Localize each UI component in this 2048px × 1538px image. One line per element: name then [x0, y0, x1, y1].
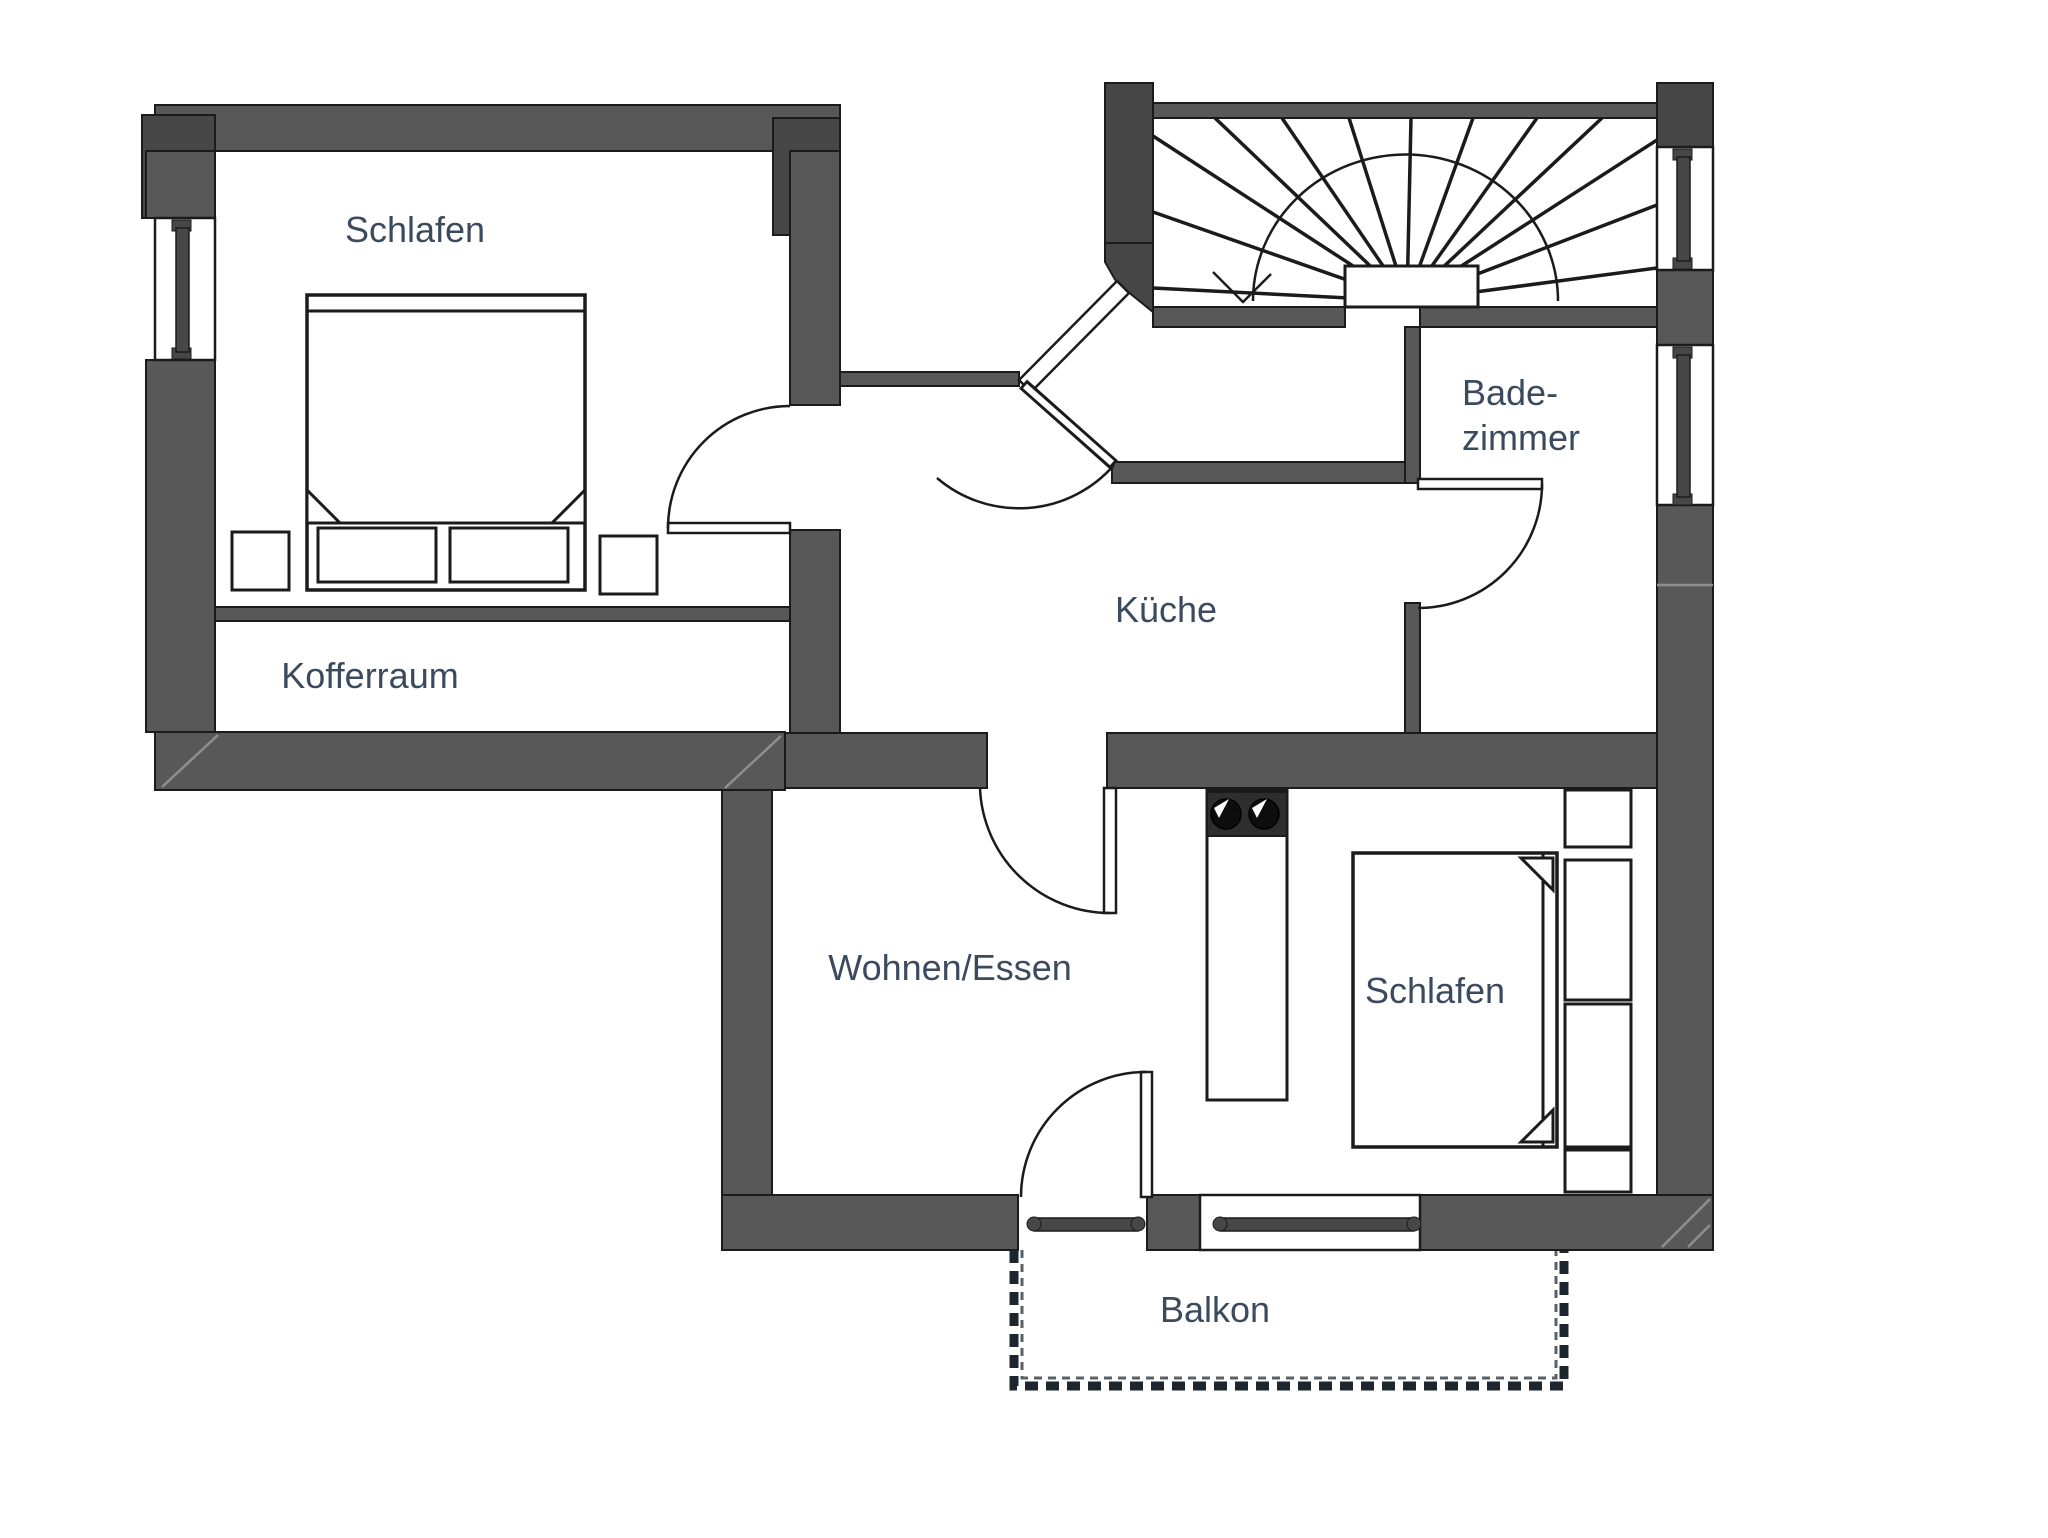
wall-south-pier [1147, 1195, 1200, 1250]
wall-stairs-top [1153, 103, 1657, 118]
pillar-top-right-corner [1657, 83, 1713, 147]
wall-stairs-bottom-left [1153, 307, 1345, 327]
wall-top-left-block [155, 105, 840, 151]
door-badezimmer [1418, 479, 1542, 608]
staircase [1153, 118, 1657, 307]
door-arc [937, 465, 1114, 508]
wall-west-lower-block [722, 790, 772, 1195]
door-leaf [1141, 1072, 1152, 1197]
door-leaf [1418, 479, 1542, 489]
wall-left-lower [146, 360, 215, 732]
door-leaf [1104, 788, 1116, 913]
room-label-badezimmer-line2: zimmer [1462, 417, 1580, 458]
room-label-kueche: Küche [1115, 589, 1217, 630]
kitchen-counter-icon [1207, 790, 1287, 1100]
bed-icon-schlafen1 [307, 295, 585, 590]
wall-east-lower [1657, 505, 1713, 1195]
wall-notch-thin [840, 372, 1019, 386]
stair-landing [1345, 266, 1478, 307]
wall-bath-west-upper [1405, 327, 1420, 483]
wall-diagonal [1019, 281, 1129, 392]
wall-east-between-windows [1657, 270, 1713, 345]
room-label-balkon: Balkon [1160, 1289, 1270, 1330]
wall-stairs-bottom-right [1420, 307, 1657, 327]
room-label-schlafen2: Schlafen [1365, 970, 1505, 1011]
balcony-railing [1014, 1250, 1564, 1386]
wall-schlafen1-right-upper [790, 151, 840, 405]
room-label-schlafen1: Schlafen [345, 209, 485, 250]
door-arc [980, 788, 1110, 913]
wall-south-seg1 [722, 1195, 1018, 1250]
room-label-wohnen-essen: Wohnen/Essen [828, 947, 1072, 988]
window-stairs-east [1657, 147, 1713, 270]
wall-entry-south [1112, 462, 1417, 483]
floorplan-svg: Schlafen Kofferraum Küche Bade- zimmer W… [0, 0, 2048, 1538]
nightstand-icon-left [232, 532, 289, 590]
door-arc [668, 406, 790, 528]
wardrobe-icon-schlafen2 [1565, 790, 1631, 1192]
door-wohnen-essen [980, 788, 1116, 913]
wall-kueche-south-seg2 [1107, 733, 1657, 788]
nightstand-icon-right [600, 536, 657, 594]
wall-bath-west-lower [1405, 603, 1420, 733]
window-schlafen1-west [155, 218, 215, 360]
stair-direction-arrow [1213, 272, 1271, 302]
floorplan-page: Schlafen Kofferraum Küche Bade- zimmer W… [0, 0, 2048, 1538]
wall-bottom-left-block [155, 732, 785, 790]
door-arc [1021, 1072, 1146, 1197]
balcony-door-sill [1027, 1217, 1145, 1231]
wall-kueche-south-seg1 [785, 733, 987, 788]
room-label-badezimmer-line1: Bade- [1462, 372, 1558, 413]
door-kueche-diagonal [937, 384, 1114, 508]
wall-partition-kofferraum [215, 607, 790, 621]
pillar-stairs-left [1105, 83, 1153, 243]
wall-schlafen1-right-lower [790, 530, 840, 737]
door-leaf [668, 523, 790, 533]
wall-south-seg2 [1420, 1195, 1713, 1250]
door-schlafen1 [668, 406, 790, 533]
window-schlafen2-south [1200, 1195, 1421, 1250]
door-balkon [1021, 1072, 1152, 1197]
door-arc [1418, 484, 1542, 608]
room-label-kofferraum: Kofferraum [281, 655, 458, 696]
wall-left-upper [146, 151, 215, 218]
window-badezimmer-east [1657, 345, 1713, 505]
